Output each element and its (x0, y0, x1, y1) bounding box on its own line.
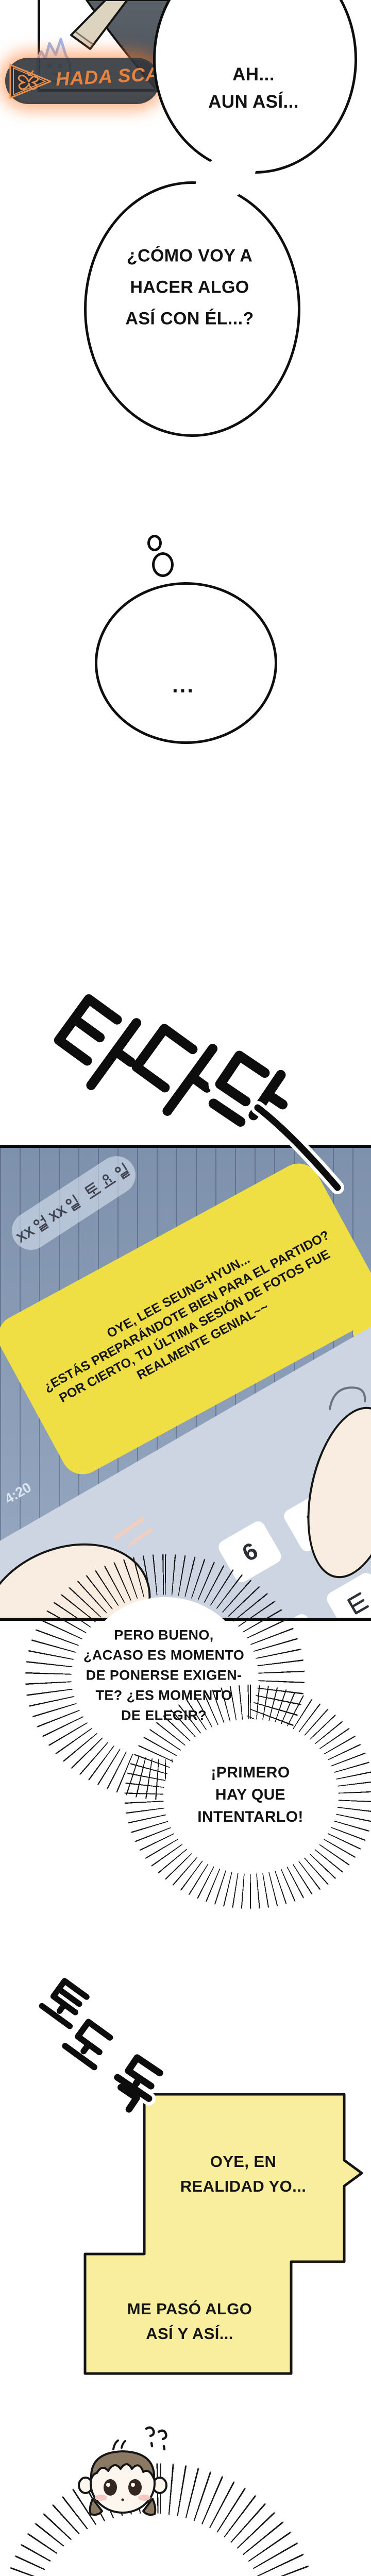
watermark-logo-icon (6, 60, 56, 103)
msg1-line: OYE, EN (210, 2153, 277, 2171)
msg2-line: ME PASÓ ALGO (127, 2300, 252, 2318)
burst1-line: PERO BUENO, (114, 1628, 213, 1643)
webtoon-page: HADA SCAN AH... AUN ASÍ... ¿CÓMO VOY A H… (0, 0, 371, 2576)
burst1-line: ¿ACASO ES MOMENTO (83, 1648, 244, 1664)
burst2-line: ¡PRIMERO (211, 1764, 290, 1782)
thought-dot-large (152, 552, 174, 577)
ellipsis-text: ... (172, 673, 195, 698)
bubble1-line: AH... (232, 64, 275, 85)
confusion-marks-icon (140, 2425, 169, 2455)
hangul-t-icon (340, 1585, 371, 1621)
msg2-line: ASÍ Y ASÍ... (146, 2325, 233, 2343)
ellipsis-bubble (95, 582, 277, 744)
bubble2-line: ASÍ CON ÉL...? (125, 309, 254, 329)
message-box-group1 (0, 2081, 371, 2391)
burst2-line: HAY QUE (215, 1786, 285, 1804)
date-pill: XX XX (5, 1149, 143, 1257)
key-6-label: 6 (237, 1536, 262, 1567)
bubble2-line: ¿CÓMO VOY A (127, 246, 252, 266)
top-panel: HADA SCAN AH... AUN ASÍ... (0, 0, 371, 216)
chat-line: ¿ESTÁS PREPARÁNDOTE BIEN PARA EL PARTIDO… (41, 1227, 332, 1396)
bubble1-line: AUN ASÍ... (208, 92, 299, 112)
thought-dot-small (147, 535, 162, 551)
chat-timestamp: 4:20 (2, 1480, 34, 1507)
burst2-line: INTENTARLO! (197, 1808, 303, 1826)
msg1-line: REALIDAD YO... (180, 2177, 306, 2196)
bubble2-line: HACER ALGO (130, 278, 249, 298)
